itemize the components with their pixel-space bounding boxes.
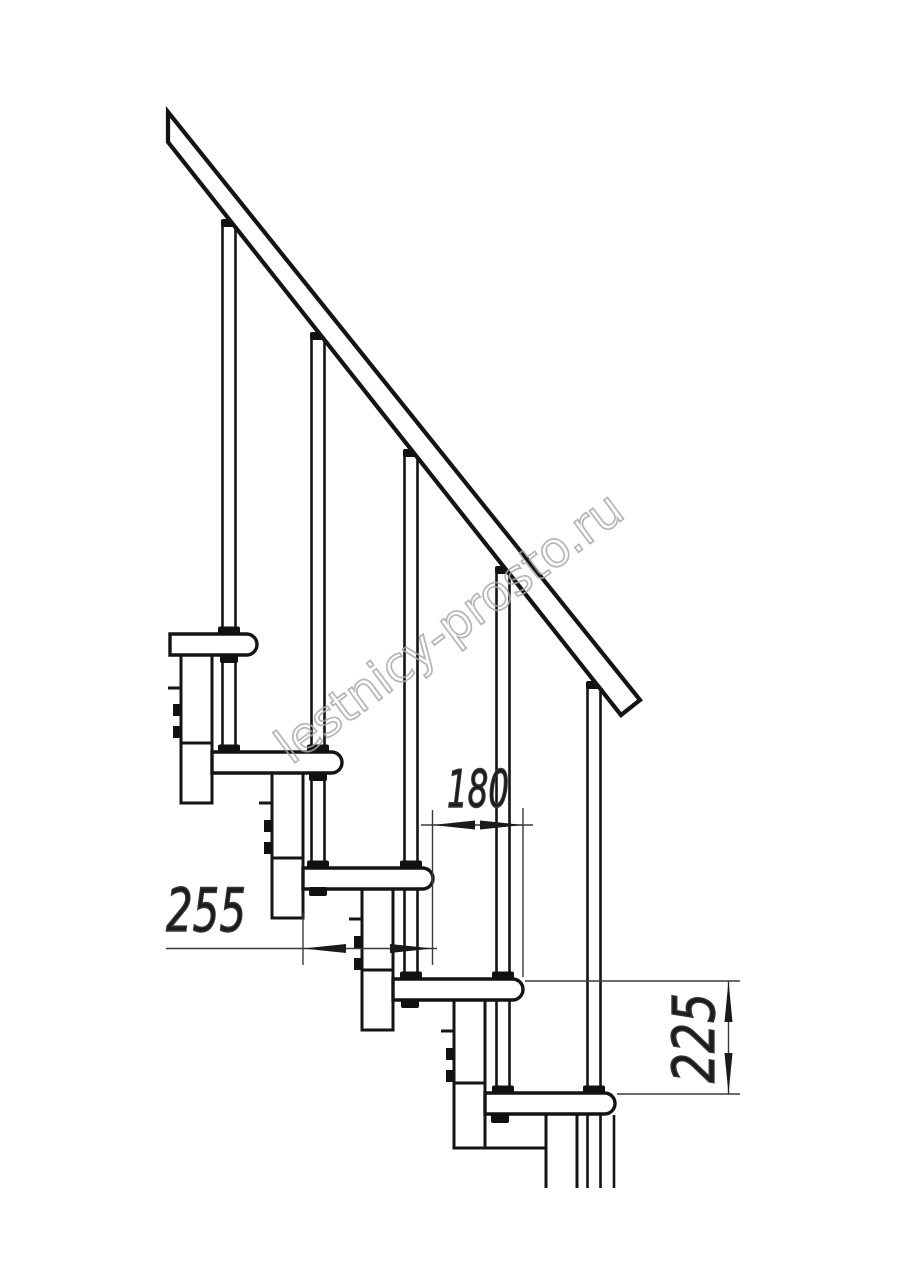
- dimension-label-225: 225: [660, 993, 728, 1083]
- arrowhead-right: [390, 944, 433, 953]
- bolt-tab: [173, 726, 181, 738]
- support-column-3: [349, 887, 393, 1030]
- tread-1: [170, 634, 257, 655]
- bolt-tab: [264, 820, 272, 832]
- support-column-5: [486, 1115, 577, 1188]
- support-column-4: [441, 999, 485, 1148]
- tread-5: [485, 1093, 615, 1114]
- baluster-collar: [218, 627, 240, 635]
- tread-3: [303, 868, 433, 889]
- bolt-tab: [173, 704, 181, 716]
- bolt-tab: [446, 1048, 454, 1060]
- bolt-tab: [446, 1070, 454, 1082]
- baluster-collar: [307, 861, 329, 869]
- baluster-3: [405, 456, 418, 975]
- nut: [309, 772, 327, 781]
- support-column-1: [168, 655, 212, 803]
- baluster-collar: [492, 1086, 514, 1094]
- arrowhead-left: [433, 821, 476, 830]
- dimension-180: 180: [421, 760, 533, 977]
- baluster-collar: [400, 861, 422, 869]
- baluster-4: [497, 573, 510, 1089]
- baluster-collar: [492, 972, 514, 980]
- baluster-2: [312, 339, 325, 864]
- bolt-tab: [354, 958, 362, 970]
- staircase-technical-drawing-page: 255 180 225 lestnicy-prosto.ru: [0, 0, 914, 1280]
- nut: [401, 999, 419, 1008]
- balusters: [223, 226, 615, 1188]
- bolt-tab: [354, 936, 362, 948]
- dimension-label-255: 255: [166, 876, 246, 946]
- arrowhead-right: [480, 821, 523, 830]
- baluster-collar: [400, 972, 422, 980]
- dimension-225: 225: [525, 981, 740, 1094]
- staircase-technical-drawing: 255 180 225 lestnicy-prosto.ru: [0, 0, 914, 1280]
- tread-4: [393, 979, 523, 1000]
- nut: [491, 1114, 509, 1123]
- nut: [220, 654, 238, 663]
- baluster-collar: [583, 1086, 605, 1094]
- bolt-tab: [264, 842, 272, 854]
- baluster-1: [223, 226, 236, 748]
- dimension-label-180: 180: [447, 760, 509, 820]
- arrowhead-left: [303, 944, 346, 953]
- support-column-2: [259, 771, 303, 918]
- nut: [309, 887, 327, 896]
- baluster-collar: [218, 745, 240, 753]
